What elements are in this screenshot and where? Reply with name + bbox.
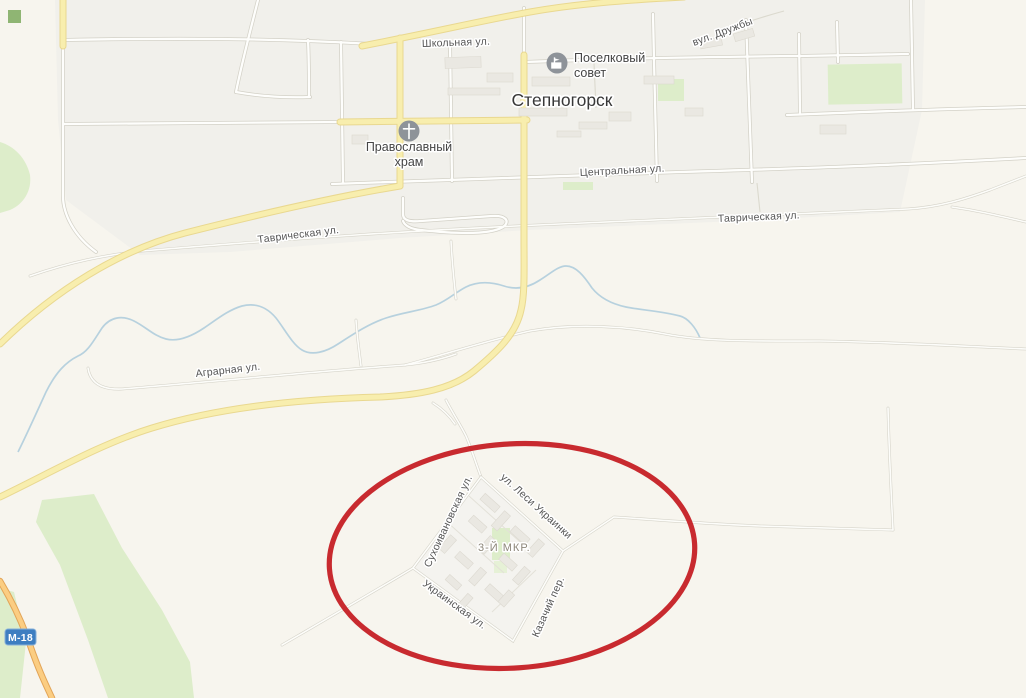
map-container: Школьная ул. вул. Дружбы Центральная ул.… xyxy=(0,0,1026,698)
map-canvas[interactable]: Школьная ул. вул. Дружбы Центральная ул.… xyxy=(0,0,1026,698)
street-label-shkolnaya: Школьная ул. xyxy=(422,36,491,50)
green-area xyxy=(828,63,903,104)
green-area xyxy=(563,182,593,190)
road-badge-text: М-18 xyxy=(8,632,33,644)
poi-label-line2: совет xyxy=(574,66,606,80)
microdistrict-label: 3-Й МКР. xyxy=(478,541,531,554)
green-square xyxy=(8,10,21,23)
town-name-label: Степногорск xyxy=(512,90,613,110)
poi-label-line1: Поселковый xyxy=(574,51,645,65)
road-badge-m18: М-18 xyxy=(5,629,36,645)
poi-label-line1: Православный xyxy=(366,140,452,154)
poi-label-line2: храм xyxy=(395,155,424,169)
